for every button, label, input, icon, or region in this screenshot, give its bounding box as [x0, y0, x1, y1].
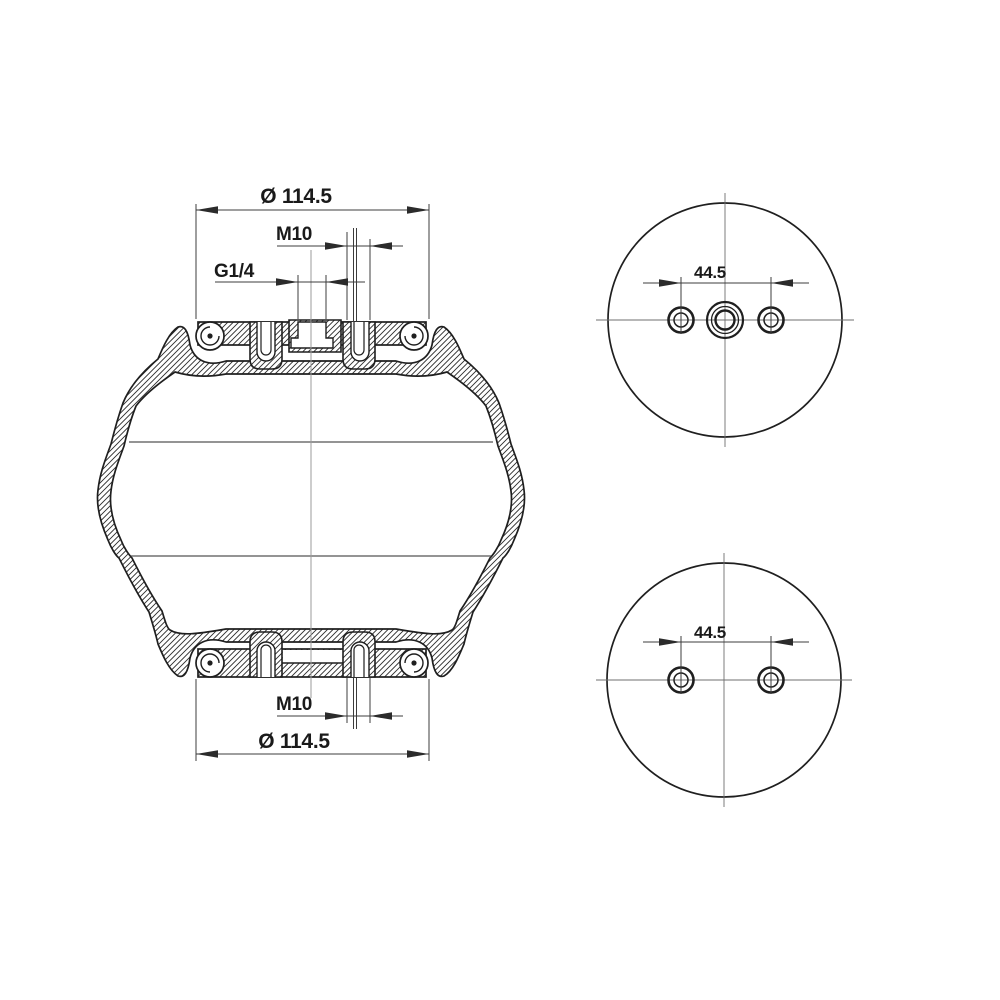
- air-port-opening: [291, 322, 333, 348]
- dim-bolt-spacing-top-label: 44.5: [694, 263, 726, 282]
- bolt-stud: [354, 645, 364, 677]
- dim-top-thread-label: M10: [276, 224, 312, 245]
- bottom-left-crimp: [196, 649, 224, 677]
- dim-bolt-spacing-bottom-label: 44.5: [694, 623, 726, 642]
- bolt-stud: [261, 322, 271, 355]
- dim-bottom-diameter-label: Ø 114.5: [258, 730, 330, 753]
- bolt-stud: [261, 645, 271, 677]
- side-view: Ø 114.5 M10 G1/4: [97, 185, 524, 761]
- top-left-crimp: [196, 322, 224, 350]
- top-end-view: 44.5: [596, 193, 854, 447]
- technical-drawing-canvas: Ø 114.5 M10 G1/4: [0, 0, 1000, 1000]
- bottom-right-crimp: [400, 649, 428, 677]
- bottom-plate-recess: [283, 650, 343, 663]
- air-spring-drawing: Ø 114.5 M10 G1/4: [0, 0, 1000, 1000]
- bottom-end-view: 44.5: [596, 553, 852, 807]
- bottom-left-socket: [250, 632, 282, 677]
- dim-top-diameter-label: Ø 114.5: [260, 185, 332, 208]
- bolt-stud: [354, 322, 364, 355]
- top-right-crimp: [400, 322, 428, 350]
- dim-air-port-label: G1/4: [214, 261, 255, 282]
- dim-bottom-thread-label: M10: [276, 694, 312, 715]
- top-left-socket: [250, 322, 282, 369]
- top-right-socket: [343, 322, 375, 369]
- bottom-right-socket: [343, 632, 375, 677]
